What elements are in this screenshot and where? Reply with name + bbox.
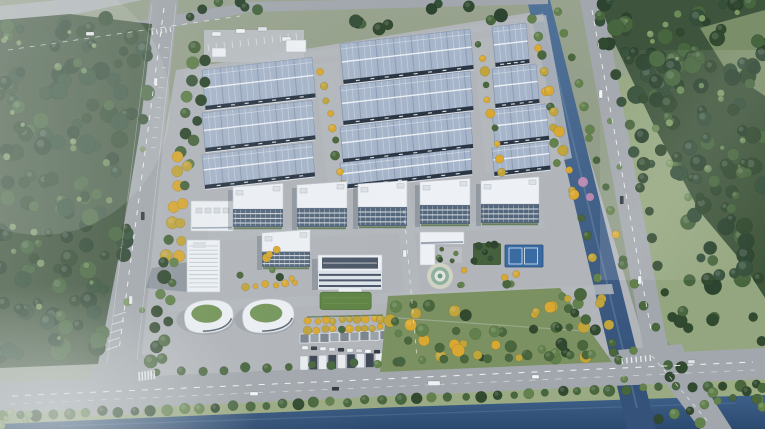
warehouse	[492, 23, 530, 68]
blossom-tree	[586, 193, 594, 201]
playground-ring	[438, 274, 443, 279]
sun-glare	[600, 50, 765, 280]
warehouse	[492, 104, 549, 147]
midrise-building	[415, 179, 470, 228]
l-building-facade	[421, 242, 463, 243]
blossom-tree	[578, 177, 588, 187]
l-building-wing	[420, 244, 435, 265]
aerial-site-rendering	[0, 0, 765, 429]
midrise-building	[476, 177, 539, 226]
warehouse	[492, 64, 540, 109]
rendering-canvas	[0, 0, 765, 429]
